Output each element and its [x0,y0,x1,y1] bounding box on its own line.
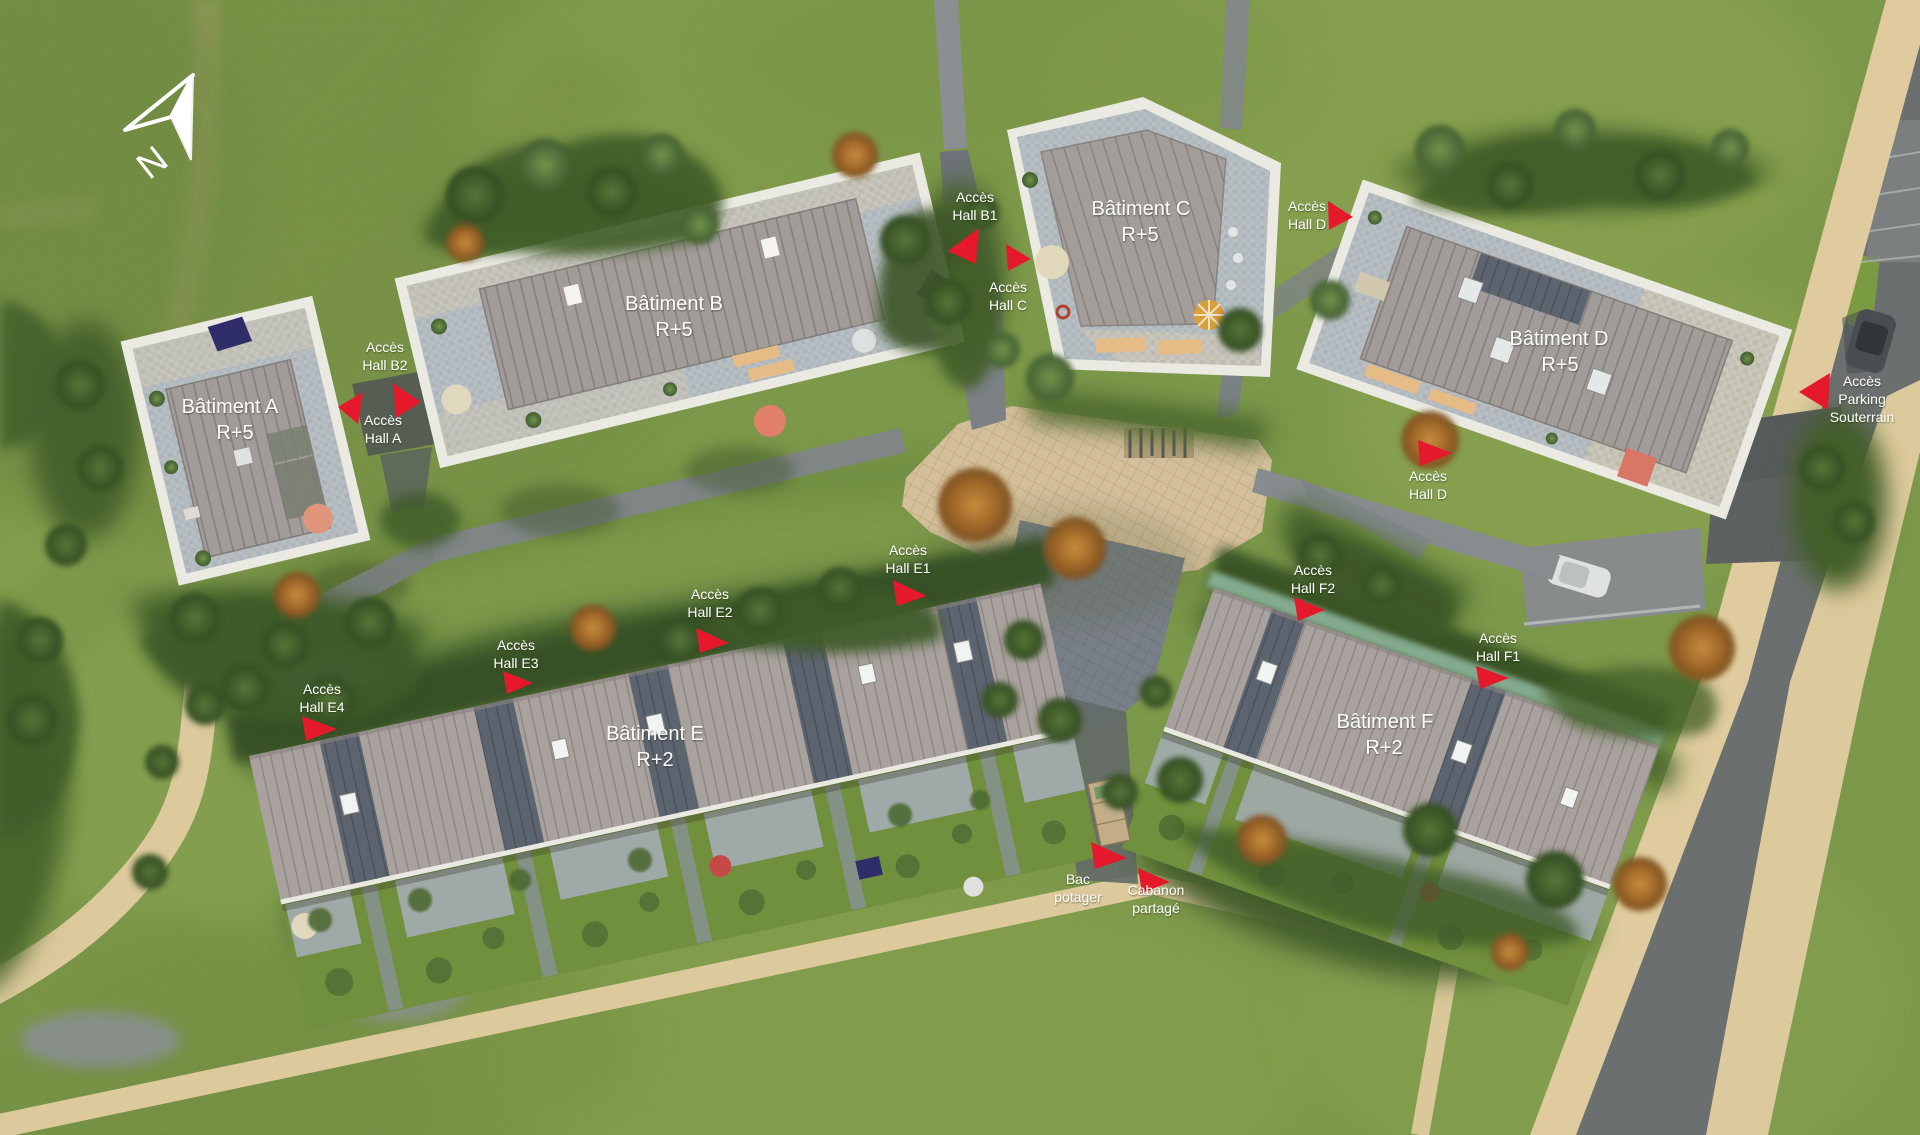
svg-text:Accès: Accès [1843,373,1881,389]
svg-text:Accès: Accès [497,637,535,653]
svg-text:Bâtiment E: Bâtiment E [606,723,704,745]
svg-text:R+5: R+5 [1541,354,1578,376]
svg-text:Hall E2: Hall E2 [687,604,732,620]
svg-text:potager: potager [1054,889,1102,905]
svg-text:R+5: R+5 [655,319,692,341]
svg-text:Hall A: Hall A [365,430,402,446]
svg-text:Accès: Accès [364,412,402,428]
svg-text:Hall E3: Hall E3 [493,655,538,671]
svg-text:Accès: Accès [366,339,404,355]
svg-text:Accès: Accès [989,279,1027,295]
svg-text:Parking: Parking [1838,391,1885,407]
svg-text:R+5: R+5 [1121,224,1158,246]
svg-text:Bâtiment C: Bâtiment C [1092,198,1191,220]
svg-text:Accès: Accès [1479,630,1517,646]
svg-text:Bac: Bac [1066,871,1090,887]
svg-text:Hall C: Hall C [989,297,1027,313]
svg-text:Hall B2: Hall B2 [362,357,407,373]
svg-text:Bâtiment F: Bâtiment F [1337,711,1434,733]
svg-text:R+2: R+2 [1365,737,1402,759]
svg-text:Accès: Accès [889,542,927,558]
svg-text:Bâtiment D: Bâtiment D [1510,328,1609,350]
svg-text:Cabanon: Cabanon [1128,882,1185,898]
svg-text:Souterrain: Souterrain [1830,409,1895,425]
svg-text:Hall E4: Hall E4 [299,699,344,715]
svg-text:R+5: R+5 [216,422,253,444]
svg-text:Accès: Accès [1288,198,1326,214]
svg-text:Accès: Accès [956,189,994,205]
svg-text:Hall F2: Hall F2 [1291,580,1336,596]
svg-text:Hall E1: Hall E1 [885,560,930,576]
svg-text:Hall D: Hall D [1288,216,1326,232]
svg-text:Accès: Accès [1409,468,1447,484]
svg-text:Hall F1: Hall F1 [1476,648,1521,664]
svg-text:Bâtiment A: Bâtiment A [182,396,279,418]
svg-text:Accès: Accès [303,681,341,697]
svg-text:Bâtiment B: Bâtiment B [625,293,723,315]
svg-text:Accès: Accès [691,586,729,602]
svg-text:Hall D: Hall D [1409,486,1447,502]
svg-text:Accès: Accès [1294,562,1332,578]
svg-text:partagé: partagé [1132,900,1180,916]
svg-text:R+2: R+2 [636,749,673,771]
svg-text:Hall B1: Hall B1 [952,207,997,223]
